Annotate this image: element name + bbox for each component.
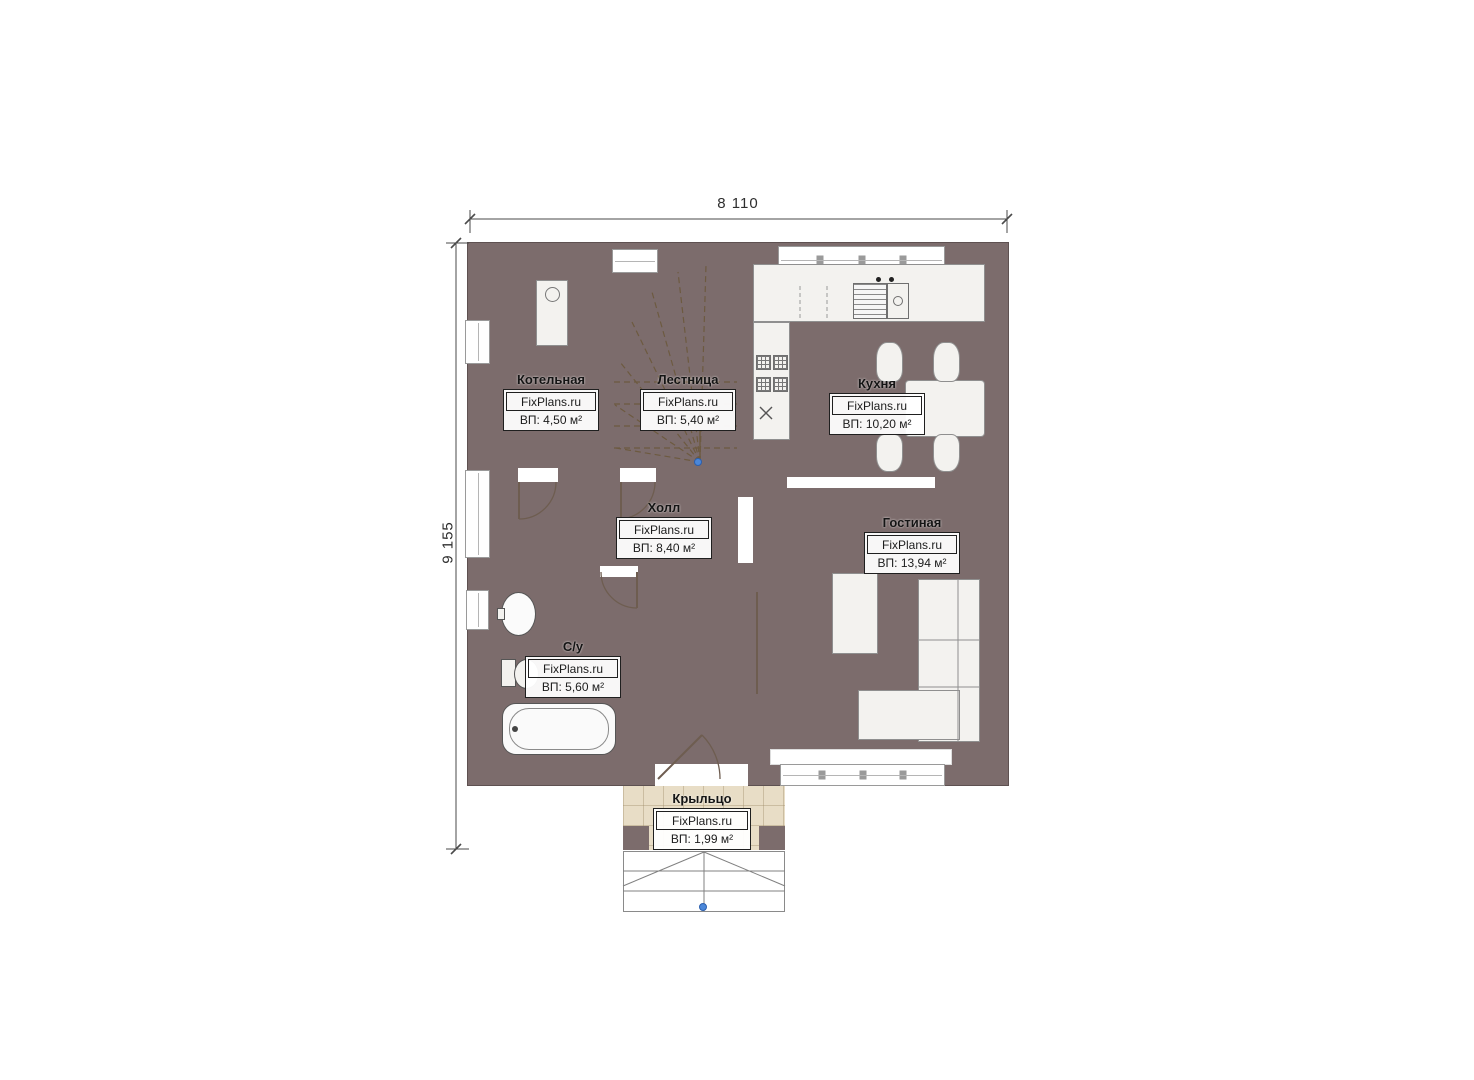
window-living <box>780 764 945 786</box>
bathtub-tap-icon <box>512 726 518 732</box>
bathroom-sink <box>501 592 536 636</box>
hall-living-opening <box>738 497 753 563</box>
faucet-dot-icon <box>876 277 881 282</box>
room-info-box: FixPlans.ru ВП: 1,99 м² <box>653 808 751 850</box>
room-info-box: FixPlans.ru ВП: 5,60 м² <box>525 656 621 698</box>
room-label-living: Гостиная FixPlans.ru ВП: 13,94 м² <box>864 515 960 574</box>
room-label-kitchen: Кухня FixPlans.ru ВП: 10,20 м² <box>829 376 925 435</box>
stair-center-marker-dot <box>694 458 702 466</box>
window-mullion <box>900 771 907 780</box>
room-name: Кухня <box>829 376 925 391</box>
stove-burner-icon <box>756 355 771 370</box>
room-info-box: FixPlans.ru ВП: 8,40 м² <box>616 517 712 559</box>
faucet-dot-icon <box>889 277 894 282</box>
room-area: ВП: 5,60 м² <box>526 678 620 697</box>
kitchen-living-opening <box>787 477 935 488</box>
porch-post-right <box>759 826 785 850</box>
boiler-door-opening <box>518 468 558 482</box>
stove-burner-icon <box>773 377 788 392</box>
room-name: Холл <box>616 500 712 515</box>
stove-burner-icon <box>773 355 788 370</box>
room-label-porch: Крыльцо FixPlans.ru ВП: 1,99 м² <box>653 791 751 850</box>
fixplans-watermark: FixPlans.ru <box>506 392 596 411</box>
room-area: ВП: 8,40 м² <box>617 539 711 558</box>
coffee-table <box>832 573 878 654</box>
fixplans-watermark: FixPlans.ru <box>643 392 733 411</box>
floor-plan-canvas: 8 110 9 155 <box>0 0 1474 1080</box>
room-name: С/у <box>525 639 621 654</box>
room-label-bathroom: С/у FixPlans.ru ВП: 5,60 м² <box>525 639 621 698</box>
entrance-door-opening <box>655 764 748 786</box>
window-bathroom <box>466 590 489 630</box>
boiler-flue-icon <box>545 287 560 302</box>
stove-burner-icon <box>756 377 771 392</box>
room-area: ВП: 4,50 м² <box>504 411 598 430</box>
bathtub-basin <box>509 708 609 750</box>
wall-bathroom-east <box>628 565 642 764</box>
window-mullion <box>899 255 906 264</box>
stairs-door-opening <box>620 468 656 482</box>
dining-chair <box>933 434 960 472</box>
fixplans-watermark: FixPlans.ru <box>656 811 748 830</box>
sink-tap-icon <box>497 608 505 620</box>
room-area: ВП: 13,94 м² <box>865 554 959 573</box>
room-label-stairs: Лестница FixPlans.ru ВП: 5,40 м² <box>640 372 736 431</box>
room-info-box: FixPlans.ru ВП: 10,20 м² <box>829 393 925 435</box>
porch-marker-dot <box>699 903 707 911</box>
kitchen-sink-drainboard <box>853 283 887 319</box>
living-window-sill <box>770 749 952 765</box>
room-name: Лестница <box>640 372 736 387</box>
window-boiler <box>465 320 490 364</box>
dining-chair <box>876 434 903 472</box>
fixplans-watermark: FixPlans.ru <box>528 659 618 678</box>
window-hall <box>465 470 490 558</box>
window-mullion <box>818 771 825 780</box>
porch-post-left <box>623 826 649 850</box>
room-name: Гостиная <box>864 515 960 530</box>
room-area: ВП: 10,20 м² <box>830 415 924 434</box>
room-label-boiler: Котельная FixPlans.ru ВП: 4,50 м² <box>503 372 599 431</box>
window-mullion <box>858 255 865 264</box>
room-label-hall: Холл FixPlans.ru ВП: 8,40 м² <box>616 500 712 559</box>
window-mullion <box>859 771 866 780</box>
sink-drain-icon <box>893 296 903 306</box>
dining-chair <box>933 342 960 382</box>
dimension-height-label: 9 155 <box>440 511 457 575</box>
room-info-box: FixPlans.ru ВП: 13,94 м² <box>864 532 960 574</box>
room-area: ВП: 1,99 м² <box>654 830 750 849</box>
dimension-width-label: 8 110 <box>688 195 788 212</box>
fixplans-watermark: FixPlans.ru <box>867 535 957 554</box>
window-stairs <box>612 249 658 273</box>
room-area: ВП: 5,40 м² <box>641 411 735 430</box>
fixplans-watermark: FixPlans.ru <box>832 396 922 415</box>
fixplans-watermark: FixPlans.ru <box>619 520 709 539</box>
wall-boiler-stairs <box>600 264 613 468</box>
sofa-bottom-section <box>858 690 960 740</box>
bathroom-door-opening <box>600 566 638 577</box>
room-name: Котельная <box>503 372 599 387</box>
room-info-box: FixPlans.ru ВП: 5,40 м² <box>640 389 736 431</box>
window-mullion <box>817 255 824 264</box>
room-name: Крыльцо <box>653 791 751 806</box>
room-info-box: FixPlans.ru ВП: 4,50 м² <box>503 389 599 431</box>
